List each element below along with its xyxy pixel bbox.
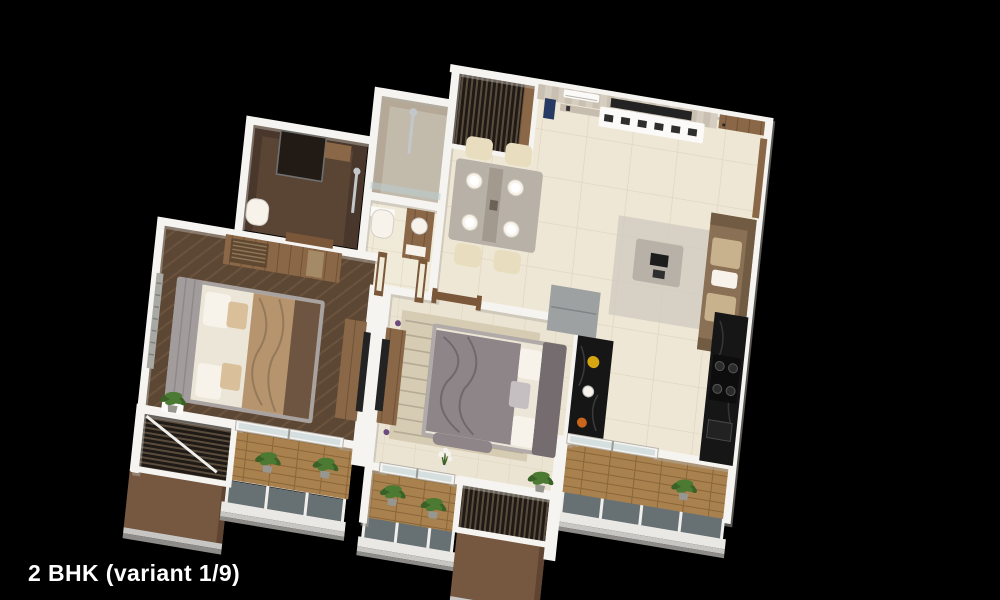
shower-cubicle	[276, 130, 326, 181]
bed-2	[420, 323, 567, 464]
kitchen-sink	[707, 420, 733, 442]
coffee-table	[632, 238, 684, 288]
sofa-cushion	[710, 237, 742, 270]
wall-art	[543, 98, 556, 120]
master-bed	[164, 276, 325, 424]
gas-stove	[709, 354, 741, 404]
master-pillow	[195, 362, 224, 400]
floorplan-3d-render	[0, 0, 1000, 600]
caption: 2 BHK (variant 1/9)	[28, 560, 240, 587]
toilet-master	[245, 197, 269, 226]
bed2-pillow	[518, 348, 543, 381]
bed2-pillow	[510, 415, 535, 448]
vanity-common	[402, 208, 435, 262]
refrigerator	[547, 284, 601, 338]
floorplan-render-canvas: 2 BHK (variant 1/9)	[0, 0, 1000, 600]
